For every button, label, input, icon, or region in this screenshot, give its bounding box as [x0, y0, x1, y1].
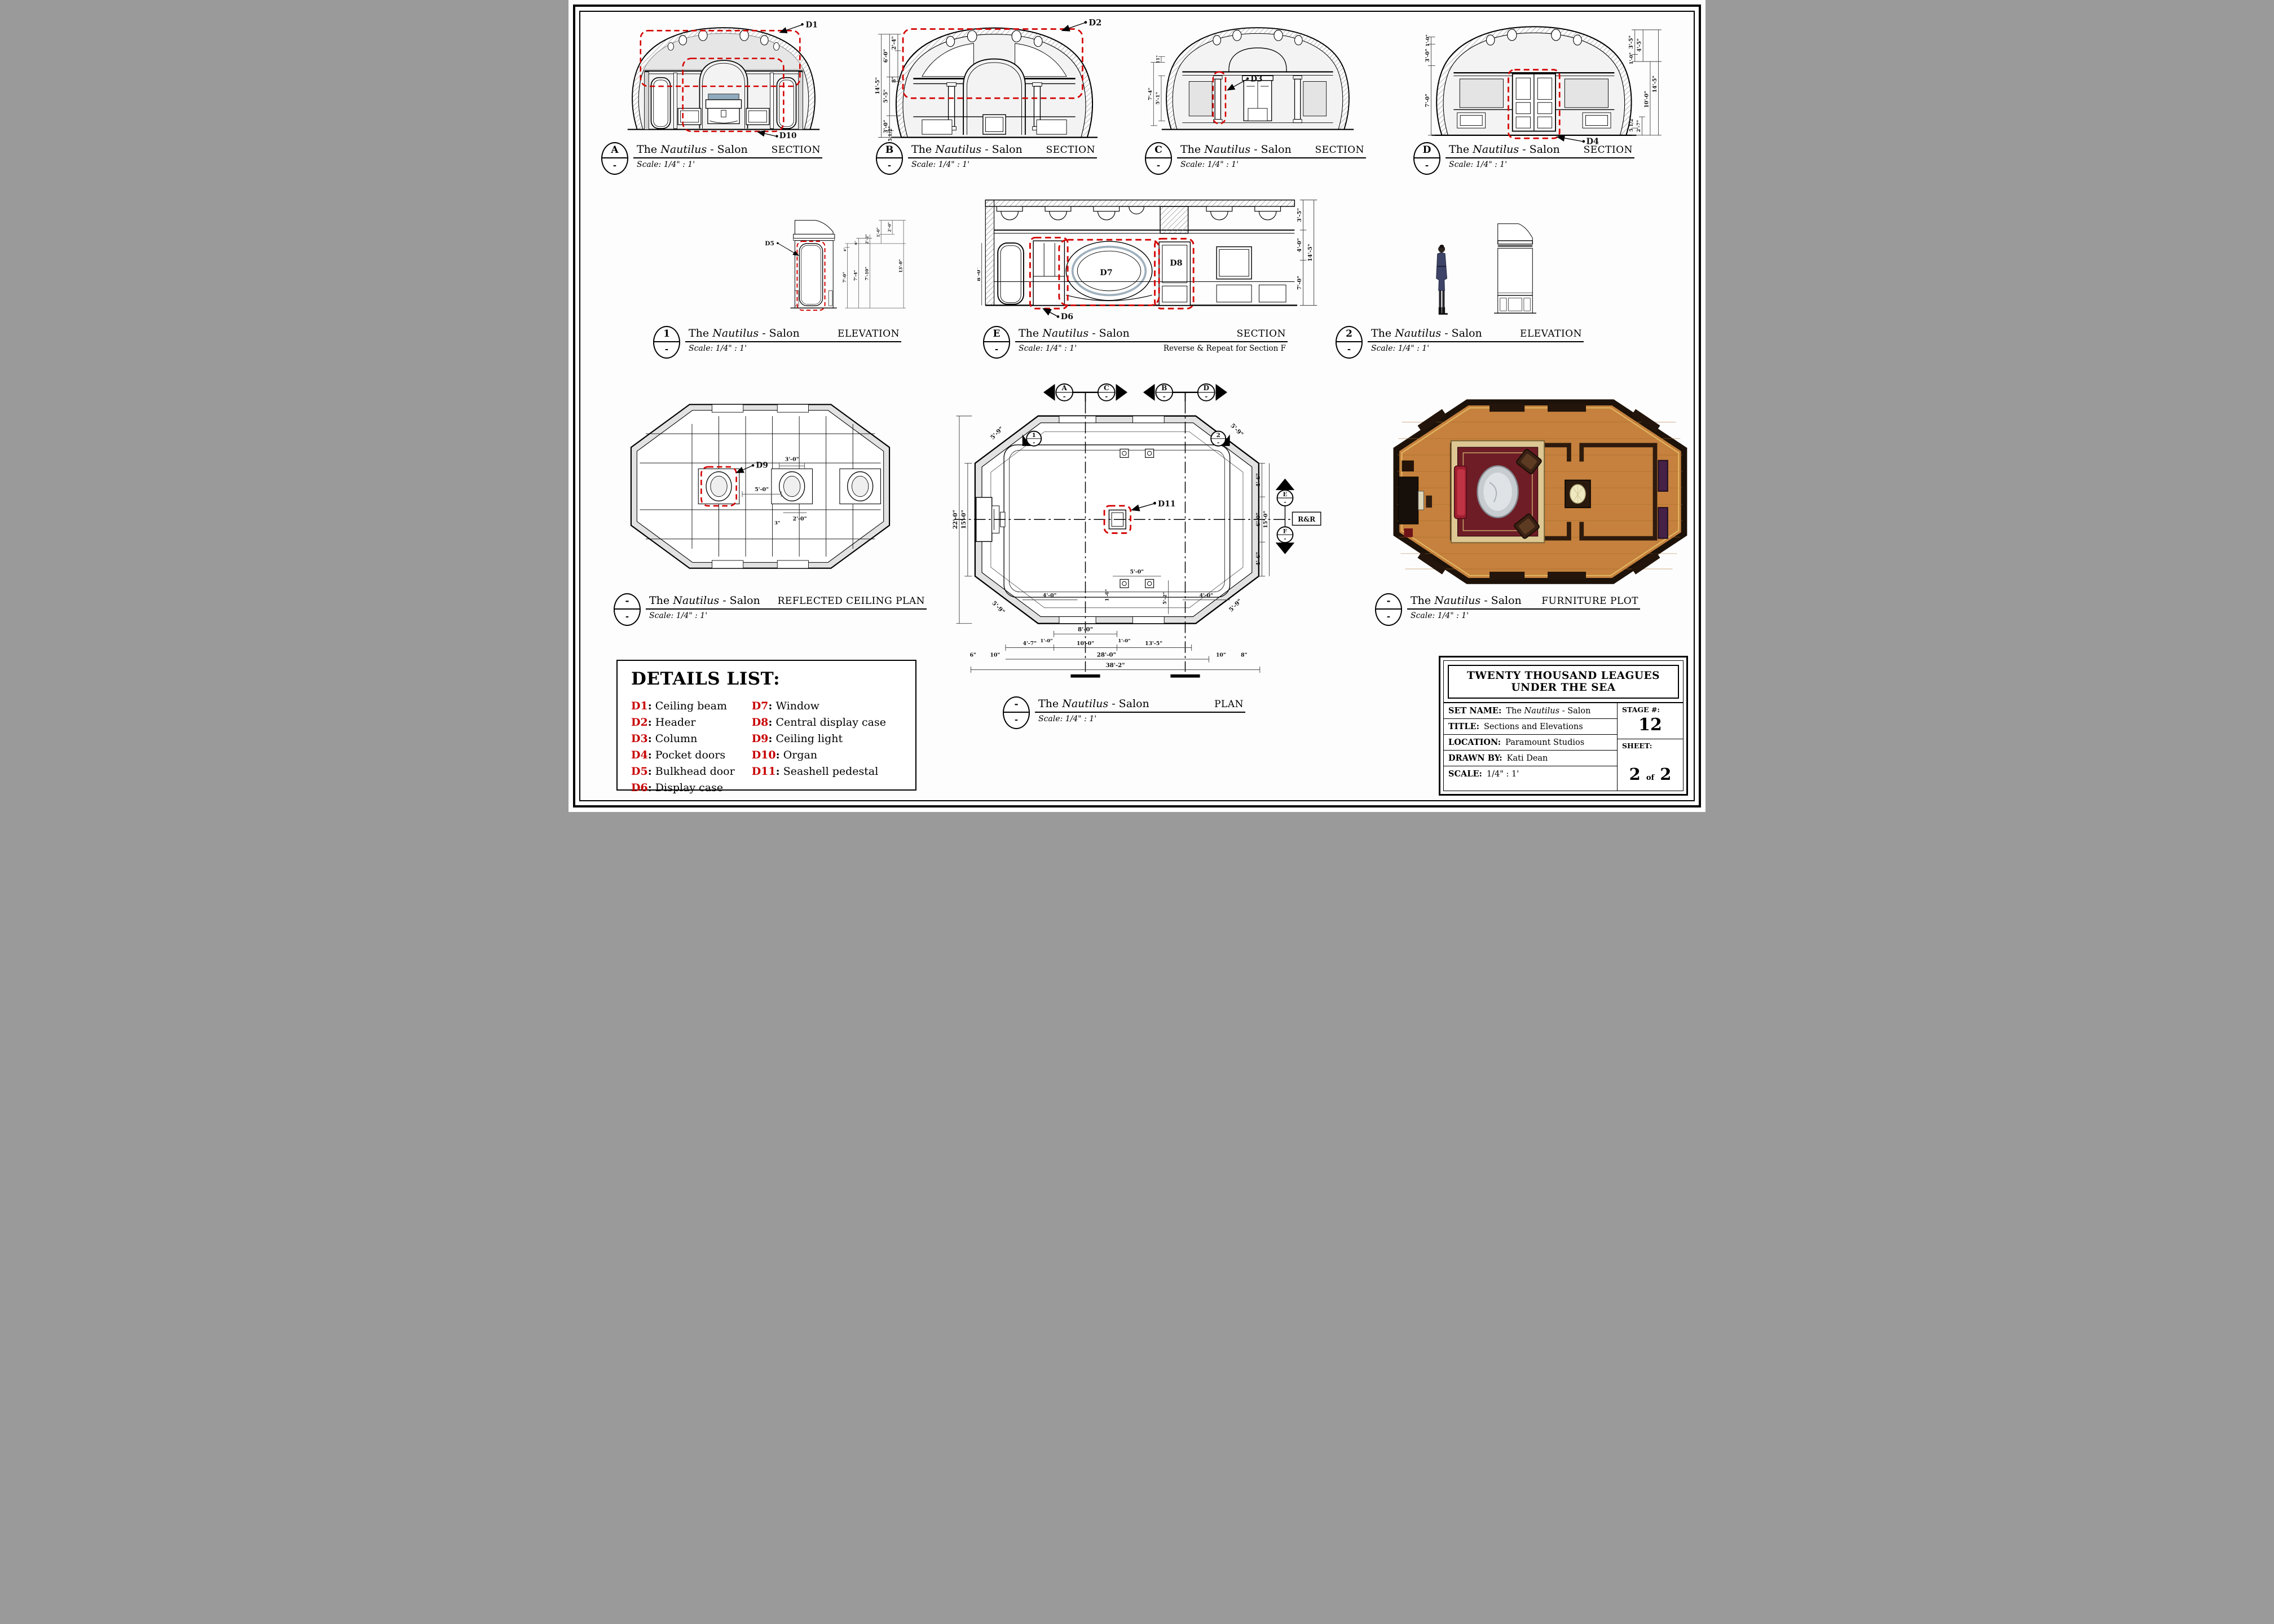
dim: 3'-5"	[1297, 208, 1303, 222]
dim: 13'-5"	[1145, 641, 1162, 647]
detail-label-d1: D1	[806, 20, 818, 29]
dim: 5'-0"	[1130, 569, 1144, 575]
marble-table	[1478, 466, 1518, 517]
dim: 4'-7"	[1023, 641, 1037, 647]
view-title-elevation-1: 1- The Nautilus - SalonELEVATIONScale: 1…	[653, 326, 901, 359]
dim: 4'-0"	[1200, 593, 1214, 599]
dimensions-left: 11" 7'-4" 5'-1"	[1148, 55, 1165, 126]
field-scale: SCALE:1/4" : 1'	[1444, 766, 1617, 782]
elevation-1-drawing: D5 4" 7'-0" 6" 7'-4" 2'-2" 7'-10" 1'-0" …	[705, 198, 915, 319]
field-set-name: SET NAME:The Nautilus - Salon	[1444, 703, 1617, 719]
dim: 10'-0"	[1643, 91, 1650, 108]
salon-wall	[994, 241, 1295, 305]
detail-item: D8: Central display case	[752, 714, 886, 731]
dim: 2'-4"	[891, 36, 897, 50]
view-bubble-e: E-	[983, 326, 1010, 359]
dim: 4'-0"	[1297, 238, 1303, 252]
detail-item: D9: Ceiling light	[752, 731, 886, 747]
dim: 5 1/2"	[1628, 116, 1634, 131]
detail-item: D10: Organ	[752, 747, 886, 764]
rcp-drawing: D9 5'-0" 3'-0" 2'-0" 3"	[616, 395, 904, 578]
dim: 5'-0"	[755, 487, 769, 493]
detail-item: D5: Bulkhead door	[631, 764, 735, 780]
drafting-sheet: D1 D10	[568, 0, 1705, 812]
dim: 4"	[843, 248, 847, 251]
dim: 5'-9"	[989, 425, 1005, 441]
sheet-number: 2 of 2	[1622, 765, 1678, 784]
view-title-section-e: E- The Nautilus - SalonSECTIONScale: 1/4…	[983, 326, 1288, 359]
dim: 8'-0"	[1078, 626, 1093, 633]
view-type: SECTION	[772, 144, 821, 156]
detail-label-d9: D9	[756, 461, 768, 470]
view-title-section-c: C- The Nautilus - SalonSECTIONScale: 1/4…	[1145, 142, 1366, 175]
detail-label-d5: D5	[765, 240, 774, 247]
dim: 13'-0"	[898, 259, 903, 272]
title-block: TWENTY THOUSAND LEAGUES UNDER THE SEA SE…	[1439, 656, 1688, 796]
view-name: The Nautilus - Salon	[1449, 143, 1560, 156]
marker-c: C	[1104, 384, 1109, 392]
detail-item: D1: Ceiling beam	[631, 698, 735, 714]
dim: 6"	[970, 652, 976, 658]
view-title-rcp: -- The Nautilus - SalonREFLECTED CEILING…	[614, 593, 927, 626]
dim: 14'-5"	[1307, 244, 1314, 262]
view-name: The Nautilus - Salon	[1038, 698, 1149, 710]
view-title-section-a: A- The Nautilus - SalonSECTIONScale: 1/4…	[601, 142, 822, 175]
dim: 7'-4"	[1148, 87, 1153, 100]
detail-label-d7: D7	[1100, 268, 1112, 277]
dim: 15'-0"	[960, 510, 967, 529]
view-title-plan: -- The Nautilus - SalonPLANScale: 1/4" :…	[1003, 696, 1245, 729]
dim: 5'-9"	[1229, 422, 1245, 438]
marker-sub: -	[1163, 392, 1166, 400]
details-column-1: D1: Ceiling beam D2: Header D3: Column D…	[631, 698, 735, 796]
dim: 5'-1"	[1156, 92, 1161, 104]
production-title: TWENTY THOUSAND LEAGUES UNDER THE SEA	[1448, 665, 1679, 699]
dim: 2'-0"	[792, 516, 807, 522]
elevation-2-drawing	[1385, 203, 1581, 324]
dim: 5 1/2"	[887, 126, 893, 142]
section-c-drawing: D3 11" 7'-4" 5'-1"	[1145, 14, 1370, 139]
field-sheet: SHEET: 2 of 2	[1618, 739, 1683, 791]
detail-item: D3: Column	[631, 731, 735, 747]
dim: 7'-0"	[1425, 94, 1431, 107]
dim: 1'-0"	[1104, 589, 1109, 601]
dim: 2'-2"	[865, 234, 870, 244]
section-markers-top: A - C - B - D -	[1043, 384, 1227, 402]
dim: 6'-0"	[883, 49, 889, 63]
detail-label-d11: D11	[1158, 500, 1176, 509]
furniture-plot-drawing	[1385, 395, 1693, 589]
dim: 8'-0"	[977, 267, 982, 281]
field-drawn-by: DRAWN BY:Kati Dean	[1444, 751, 1617, 766]
dim: 3'-0"	[1425, 48, 1431, 62]
dim: 14'-5"	[875, 77, 881, 94]
view-name: The Nautilus - Salon	[637, 143, 748, 156]
marker-e: E	[1283, 491, 1288, 498]
dim: 4'-5"	[1637, 38, 1643, 52]
dim: 6"	[854, 241, 858, 245]
dimensions-left: 1'-0" 3'-0" 7'-0"	[1425, 34, 1435, 135]
dim: 1'-0"	[1425, 34, 1430, 46]
marker-2: 2	[1217, 432, 1220, 439]
field-location: LOCATION:Paramount Studios	[1444, 735, 1617, 751]
dim: 15'-0"	[1263, 511, 1269, 528]
dim: 10"	[1216, 652, 1226, 658]
details-column-2: D7: Window D8: Central display case D9: …	[752, 698, 886, 796]
section-b-drawing: D2 14'-5" 6'-0" 5'-5" 3'-0" 2'-4" 8" 5 1…	[873, 14, 1116, 148]
dim: 3'-0"	[785, 457, 799, 463]
stage-number: 12	[1622, 715, 1678, 735]
view-scale: Scale: 1/4" : 1'	[637, 160, 695, 169]
dim: 5'-5"	[883, 89, 889, 103]
view-bubble-c: C-	[1145, 142, 1172, 175]
view-title-elevation-2: 2- The Nautilus - SalonELEVATIONScale: 1…	[1336, 326, 1584, 359]
dim: 5'-9"	[1228, 598, 1244, 614]
dim: 7'-10"	[865, 267, 870, 280]
marker-sub: -	[1063, 392, 1066, 400]
marker-sub: -	[1033, 439, 1035, 446]
detail-label-d6: D6	[1061, 312, 1073, 321]
view-name: The Nautilus - Salon	[689, 327, 800, 339]
pocket-doors	[1513, 74, 1555, 131]
dim: 38'-2"	[1106, 662, 1125, 669]
section-e-note: Reverse & Repeat for Section F	[1164, 344, 1286, 353]
view-name: The Nautilus - Salon	[1180, 143, 1292, 156]
plan-drawing: A - C - B - D -	[944, 371, 1327, 687]
marker-sub: -	[1284, 535, 1286, 542]
detail-item: D7: Window	[752, 698, 886, 714]
dim: 1'-0"	[1041, 638, 1053, 643]
marker-1: 1	[1032, 432, 1036, 439]
detail-label-d8: D8	[1170, 259, 1182, 268]
detail-label-d2: D2	[1088, 18, 1101, 28]
section-markers-ef: E - F - R&R	[1276, 479, 1321, 554]
marker-sub: -	[1205, 392, 1207, 400]
dim: 7'-4"	[853, 270, 858, 281]
view-bubble-2: 2-	[1336, 326, 1363, 359]
view-name: The Nautilus - Salon	[1019, 327, 1130, 339]
dim: 11"	[1156, 55, 1161, 64]
dim: 22'-0"	[952, 510, 959, 529]
salon-interior	[645, 60, 803, 130]
dim: 4'-0"	[1043, 593, 1056, 599]
view-title-section-d: D- The Nautilus - SalonSECTIONScale: 1/4…	[1413, 142, 1634, 175]
dim: 4'-6"	[1255, 473, 1262, 487]
dim: 1'-0"	[1118, 638, 1130, 643]
view-bubble-b: B-	[876, 142, 903, 175]
section-a-drawing: D1 D10	[611, 14, 836, 139]
view-sub: -	[602, 158, 627, 172]
dim: 8"	[1241, 652, 1247, 658]
dim: 1'-0"	[1628, 52, 1634, 64]
view-bubble-a: A-	[601, 142, 628, 175]
view-bubble-rcp: --	[614, 593, 641, 626]
detail-label-d10: D10	[779, 131, 797, 139]
salon-interior	[1453, 73, 1614, 131]
view-letter: A	[602, 143, 627, 158]
dim: 8"	[891, 77, 897, 83]
section-d-drawing: D4 1'-0" 3'-0" 7'-0" 3'-5" 4'-5" 1'-0" 1…	[1413, 12, 1670, 145]
view-bubble-plan: --	[1003, 696, 1030, 729]
sofa	[1455, 466, 1466, 518]
details-list-title: DETAILS LIST:	[631, 669, 902, 689]
wall-panel	[1494, 224, 1536, 313]
dim: 6'-0"	[1255, 513, 1262, 527]
dim: 10'-0"	[1077, 641, 1094, 647]
marker-f: F	[1283, 528, 1288, 535]
dim: 5'-9"	[990, 600, 1006, 616]
field-title: TITLE:Sections and Elevations	[1444, 719, 1617, 735]
title-block-fields: SET NAME:The Nautilus - Salon TITLE:Sect…	[1444, 703, 1617, 791]
dim: 14'-5"	[1652, 76, 1658, 92]
seashell-pedestal	[1565, 480, 1590, 508]
view-title-furniture-plot: -- The Nautilus - SalonFURNITURE PLOTSca…	[1375, 593, 1640, 626]
marker-sub: -	[1284, 498, 1286, 505]
dim: 2'-7"	[1636, 120, 1641, 132]
view-bubble-furn: --	[1375, 593, 1402, 626]
marker-sub: -	[1217, 439, 1219, 446]
view-name: The Nautilus - Salon	[1411, 594, 1522, 607]
title-block-stage-sheet: STAGE #: 12 SHEET: 2 of 2	[1617, 703, 1683, 791]
human-figure	[1436, 245, 1448, 315]
detail-item: D4: Pocket doors	[631, 747, 735, 764]
dim: 3"	[774, 520, 781, 526]
dim: 2'-0"	[887, 222, 892, 232]
dim: 28'-0"	[1097, 651, 1116, 658]
details-list: DETAILS LIST: D1: Ceiling beam D2: Heade…	[616, 660, 916, 791]
view-name: The Nautilus - Salon	[911, 143, 1023, 156]
field-stage: STAGE #: 12	[1618, 703, 1683, 739]
marker-a: A	[1061, 384, 1068, 392]
view-title-section-b: B- The Nautilus - SalonSECTIONScale: 1/4…	[876, 142, 1097, 175]
dimensions-right: 4" 7'-0" 6" 7'-4" 2'-2" 7'-10" 1'-0" 2'-…	[842, 220, 906, 308]
view-name: The Nautilus - Salon	[1371, 327, 1482, 339]
dimensions-right: 3'-5" 4'-5" 1'-0" 14'-5" 10'-0" 5 1/2" 2…	[1628, 30, 1662, 135]
organ	[706, 94, 742, 124]
dim: 3'-5"	[1628, 36, 1634, 49]
marker-d: D	[1204, 384, 1210, 392]
dim: 1'-0"	[876, 227, 881, 237]
dim: 4'-6"	[1255, 552, 1262, 566]
marker-sub: -	[1105, 392, 1108, 400]
detail-item: D2: Header	[631, 714, 735, 731]
dim: 7'-0"	[842, 272, 847, 283]
dim: 7'-0"	[1297, 276, 1303, 290]
dim: 10"	[990, 652, 1000, 658]
dim: 5'-2"	[1162, 592, 1167, 604]
rr-label: R&R	[1298, 515, 1316, 523]
view-name: The Nautilus - Salon	[649, 594, 760, 607]
detail-item: D11: Seashell pedestal	[752, 764, 886, 780]
detail-item: D6: Display case	[631, 780, 735, 796]
marker-b: B	[1161, 384, 1167, 392]
view-bubble-1: 1-	[653, 326, 680, 359]
section-e-drawing: D6 D7 D8 8'-0" 3'-5" 4'-0" 7'-0" 14'-5"	[977, 196, 1321, 323]
view-bubble-d: D-	[1413, 142, 1440, 175]
detail-label-d3: D3	[1250, 75, 1262, 84]
